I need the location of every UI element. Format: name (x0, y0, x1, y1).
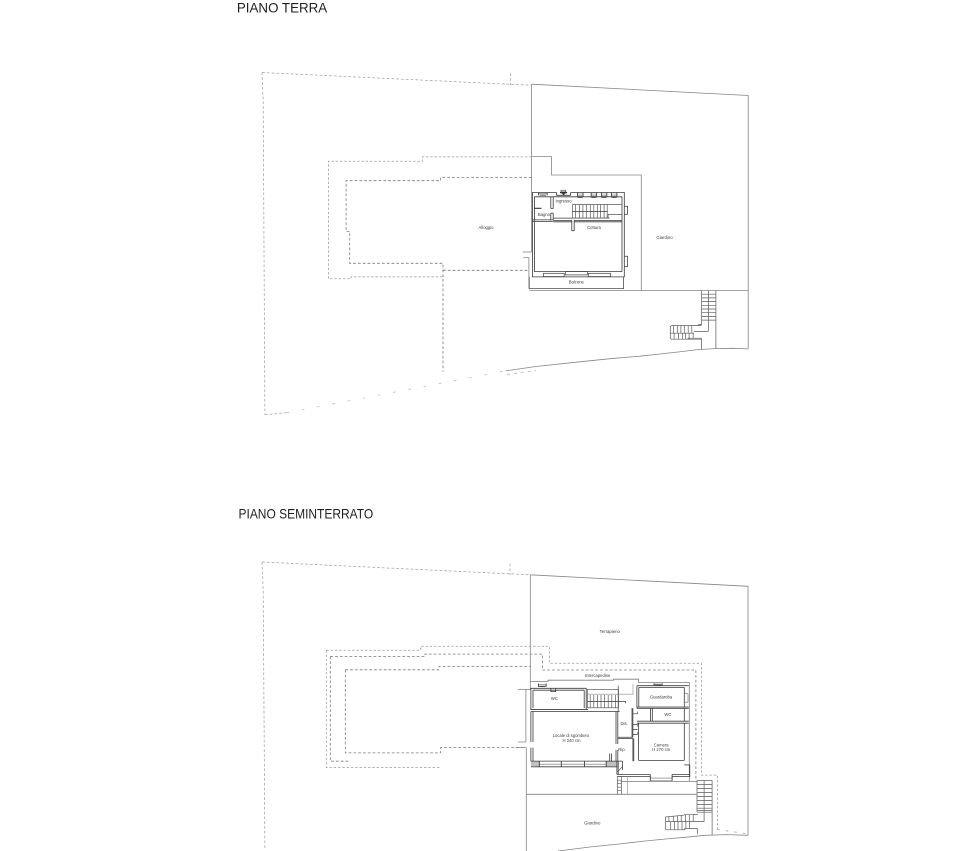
svg-text:Bagno: Bagno (538, 212, 551, 217)
svg-text:Balcone: Balcone (569, 280, 585, 285)
svg-text:Alloggio: Alloggio (479, 225, 495, 230)
svg-text:Dis.: Dis. (620, 721, 627, 726)
svg-text:Ingresso: Ingresso (555, 198, 572, 203)
svg-text:Guardaroba: Guardaroba (650, 695, 673, 700)
svg-text:PIANO TERRA: PIANO TERRA (237, 1, 328, 16)
svg-text:Intercapedine: Intercapedine (585, 673, 611, 678)
svg-text:H 240 cm: H 240 cm (563, 738, 581, 743)
svg-text:Rip.: Rip. (618, 747, 625, 752)
svg-text:WC: WC (551, 696, 558, 701)
svg-text:WC: WC (664, 712, 671, 717)
svg-text:H 270 cm: H 270 cm (652, 747, 670, 752)
svg-text:Terrapieno: Terrapieno (600, 629, 621, 634)
svg-text:Giardino: Giardino (584, 821, 601, 826)
svg-text:PIANO SEMINTERRATO: PIANO SEMINTERRATO (239, 506, 374, 521)
svg-text:Cottura: Cottura (587, 225, 601, 230)
svg-text:Giardino: Giardino (656, 235, 673, 240)
